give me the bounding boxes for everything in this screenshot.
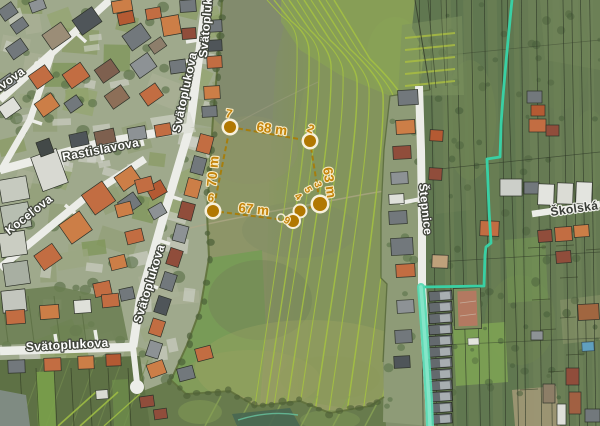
svg-text:70 m: 70 m <box>204 155 222 187</box>
svg-text:67 m: 67 m <box>238 200 270 218</box>
